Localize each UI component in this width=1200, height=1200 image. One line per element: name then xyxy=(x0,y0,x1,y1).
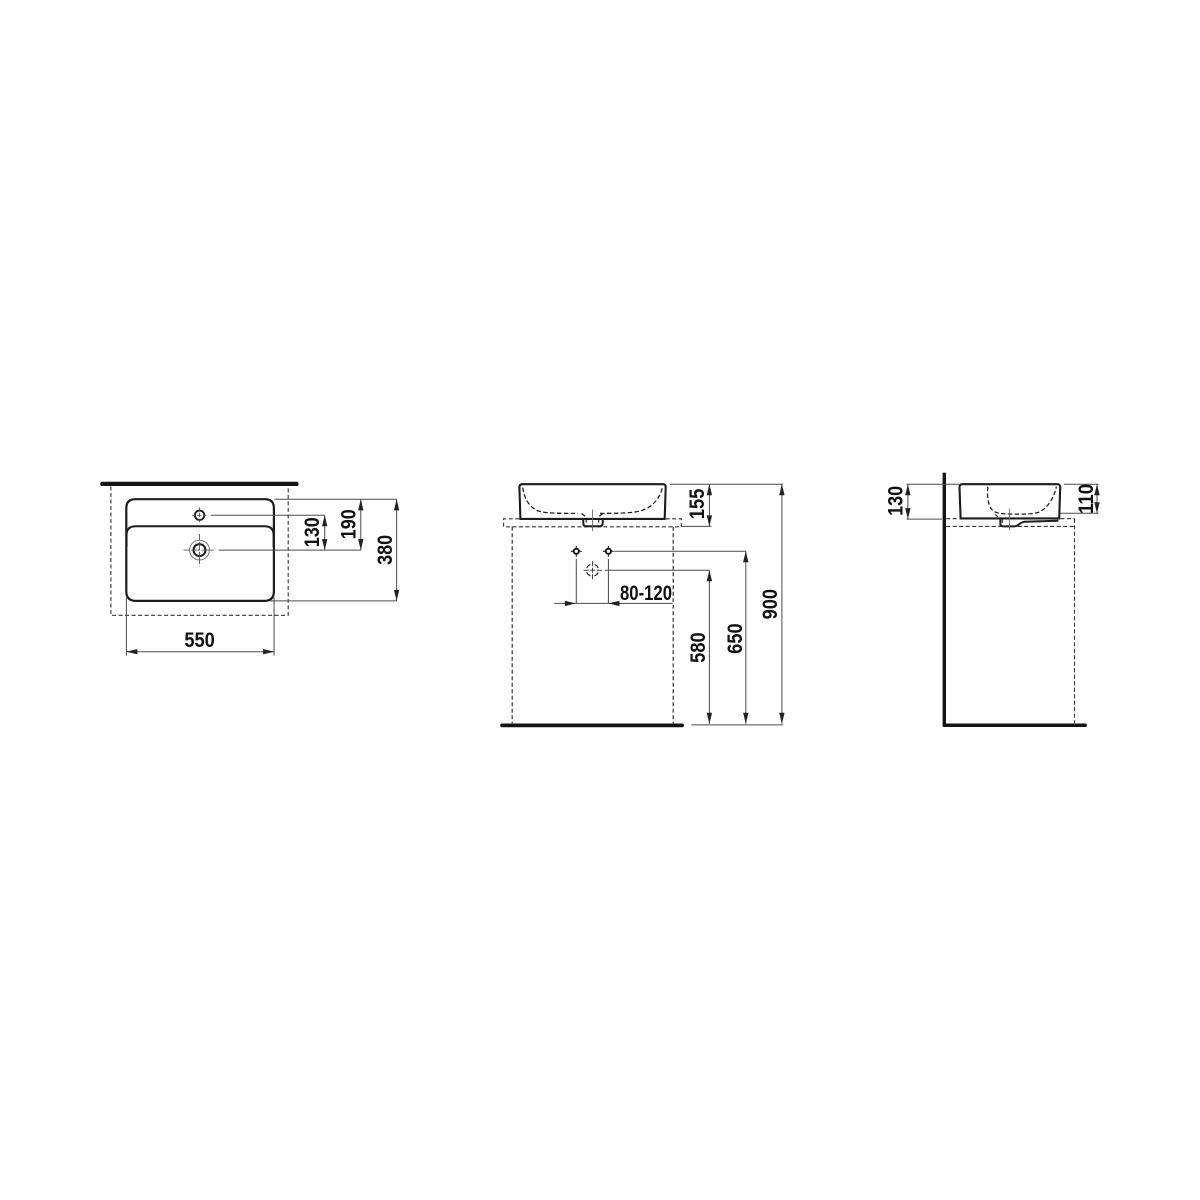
svg-text:650: 650 xyxy=(723,623,747,654)
svg-text:550: 550 xyxy=(184,628,215,652)
svg-text:130: 130 xyxy=(884,486,908,516)
svg-text:110: 110 xyxy=(1074,484,1098,514)
svg-text:900: 900 xyxy=(758,589,782,620)
svg-text:380: 380 xyxy=(373,535,397,565)
svg-text:130: 130 xyxy=(300,517,324,547)
svg-text:190: 190 xyxy=(336,509,360,539)
svg-text:80-120: 80-120 xyxy=(620,581,672,605)
svg-text:155: 155 xyxy=(685,489,709,520)
svg-text:580: 580 xyxy=(686,632,710,663)
